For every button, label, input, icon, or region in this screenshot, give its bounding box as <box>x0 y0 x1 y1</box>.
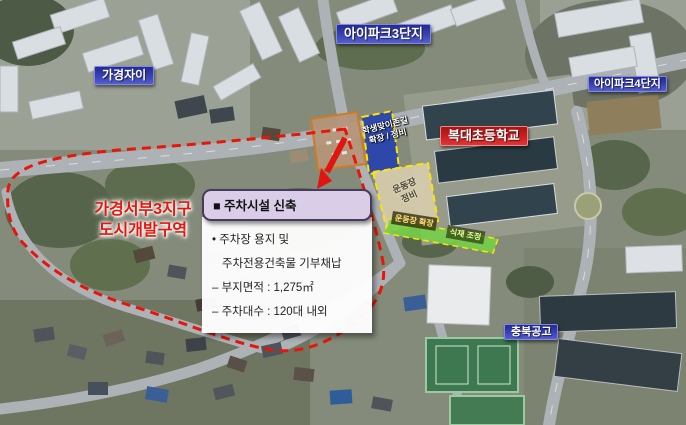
callout-title: ■ 주차시설 신축 <box>202 189 372 221</box>
tennis-courts <box>426 338 524 425</box>
callout-line-3: – 부지면적 : 1,275㎡ <box>212 275 364 299</box>
aerial-map: 가경자이 아이파크3단지 아이파크4단지 복대초등학교 충북공고 가경서부3지구… <box>0 0 686 425</box>
label-gagyeong-jai: 가경자이 <box>94 66 154 85</box>
callout-line-1: • 주차장 용지 및 <box>212 227 364 251</box>
label-ipark3: 아이파크3단지 <box>336 24 431 44</box>
white-building <box>427 265 491 325</box>
district-name-label: 가경서부3지구 도시개발구역 <box>84 200 202 242</box>
callout-body: • 주차장 용지 및 주차전용건축물 기부채납 – 부지면적 : 1,275㎡ … <box>202 217 372 333</box>
parking-facility-callout: ■ 주차시설 신축 • 주차장 용지 및 주차전용건축물 기부채납 – 부지면적… <box>202 189 372 333</box>
district-name-line1: 가경서부3지구 <box>84 200 202 221</box>
label-ipark4: 아이파크4단지 <box>588 76 667 92</box>
label-chungbuk-technical: 충북공고 <box>504 324 558 340</box>
callout-line-4: – 주차대수 : 120대 내외 <box>212 299 364 323</box>
district-name-line2: 도시개발구역 <box>84 221 202 242</box>
label-bokdae-elementary: 복대초등학교 <box>440 126 528 146</box>
callout-line-2: 주차전용건축물 기부채납 <box>222 251 364 275</box>
